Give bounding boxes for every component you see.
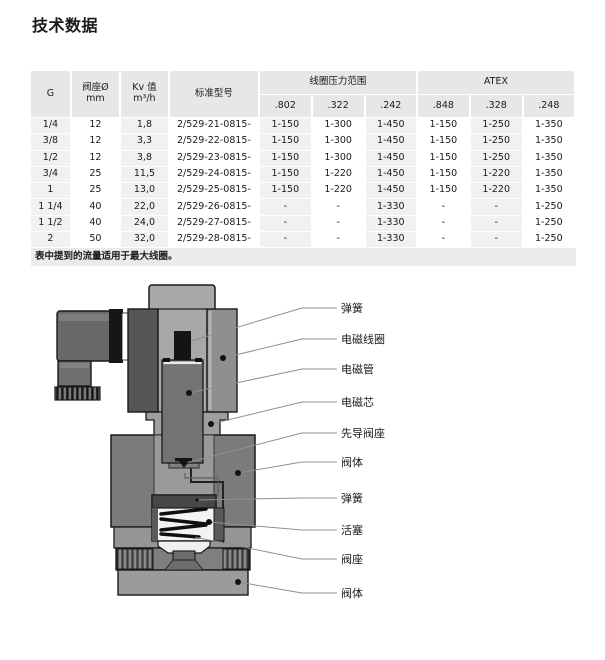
valve-cross-section-figure: 弹簧 电磁线圈 电磁管 电磁芯 先导阀座 阀体 弹簧 活塞 阀座 阀体 (0, 270, 605, 660)
sub-header: .802 (260, 95, 313, 118)
label-valve-body-bottom: 阀体 (341, 586, 363, 600)
table-cell: - (313, 216, 366, 232)
table-cell: 1-330 (366, 232, 418, 248)
table-cell: 1-450 (366, 134, 418, 150)
table-cell: - (418, 216, 471, 232)
label-solenoid-core: 电磁芯 (341, 395, 374, 409)
sub-header: .322 (313, 95, 366, 118)
table-cell: - (418, 199, 471, 215)
table-footnote: 表中提到的流量适用于最大线圈。 (31, 248, 576, 267)
coil-highlight (209, 311, 212, 410)
table-header-row-groups: G 阀座Ø mm Kv 值 m³/h 标准型号 线圈压力范围 ATEX (31, 71, 576, 95)
table-cell: 40 (72, 216, 121, 232)
table-cell: 2/529-25-0815- (170, 183, 260, 199)
table-cell: 1 1/2 (31, 216, 72, 232)
label-pilot-seat: 先导阀座 (341, 426, 385, 440)
label-valve-seat: 阀座 (341, 552, 363, 566)
table-cell: - (260, 216, 313, 232)
table-cell: 2/529-28-0815- (170, 232, 260, 248)
table-cell: 2/529-24-0815- (170, 167, 260, 183)
table-cell: 2 (31, 232, 72, 248)
table-cell: 1-450 (366, 118, 418, 134)
coil-column-left (128, 309, 158, 412)
table-cell: 1-330 (366, 199, 418, 215)
table-cell: 1-450 (366, 167, 418, 183)
table-cell: 2/529-23-0815- (170, 151, 260, 167)
label-spring-top: 弹簧 (341, 301, 363, 315)
table-cell: - (313, 199, 366, 215)
table-cell: 2/529-27-0815- (170, 216, 260, 232)
table-cell: 11,5 (121, 167, 170, 183)
table-cell: 1-250 (524, 199, 576, 215)
table-cell: 1-150 (418, 183, 471, 199)
label-solenoid-tube: 电磁管 (341, 362, 374, 376)
table-cell: 50 (72, 232, 121, 248)
table-cell: 3,8 (121, 151, 170, 167)
top-spring (174, 331, 191, 360)
table-cell: 1-300 (313, 118, 366, 134)
table-cell: 32,0 (121, 232, 170, 248)
table-cell: 1-150 (418, 151, 471, 167)
table-cell: 1-250 (471, 118, 524, 134)
table-cell: 1-350 (524, 134, 576, 150)
table-cell: 25 (72, 183, 121, 199)
col-header-kv: Kv 值 m³/h (121, 71, 170, 118)
table-cell: 1 1/4 (31, 199, 72, 215)
table-cell: 1-450 (366, 151, 418, 167)
col-header-model: 标准型号 (170, 71, 260, 118)
table-cell: 1-250 (524, 232, 576, 248)
thread-right (223, 549, 249, 569)
table-cell: 1-250 (471, 151, 524, 167)
table-cell: - (418, 232, 471, 248)
table-cell: 13,0 (121, 183, 170, 199)
col-header-seat: 阀座Ø mm (72, 71, 121, 118)
solenoid-armature (162, 358, 203, 463)
thread-left (117, 549, 153, 569)
table-cell: 1-250 (471, 134, 524, 150)
sub-header: .328 (471, 95, 524, 118)
table-cell: 2/529-21-0815- (170, 118, 260, 134)
cable-connector (55, 309, 128, 400)
table-row: 1/2123,82/529-23-0815-1-1501-3001-4501-1… (31, 151, 576, 167)
table-cell: - (471, 199, 524, 215)
table-cell: 1-350 (524, 151, 576, 167)
label-spring-bottom: 弹簧 (341, 491, 363, 505)
table-cell: 1-150 (418, 167, 471, 183)
technical-data-table: G 阀座Ø mm Kv 值 m³/h 标准型号 线圈压力范围 ATEX .802… (31, 71, 576, 267)
table-cell: 22,0 (121, 199, 170, 215)
table-cell: - (471, 216, 524, 232)
table-cell: 1-250 (524, 216, 576, 232)
group-header-coil-pressure: 线圈压力范围 (260, 71, 418, 95)
table-cell: 1-350 (524, 118, 576, 134)
valve-body-bottom (118, 570, 248, 595)
valve-diagram: 弹簧 电磁线圈 电磁管 电磁芯 先导阀座 阀体 弹簧 活塞 阀座 阀体 (0, 270, 605, 656)
table-cell: 1-220 (471, 167, 524, 183)
table-cell: 2/529-26-0815- (170, 199, 260, 215)
table-cell: 1-220 (313, 183, 366, 199)
table-row: 25032,02/529-28-0815---1-330--1-250 (31, 232, 576, 248)
table-cell: 1-150 (260, 134, 313, 150)
table-cell: - (471, 232, 524, 248)
table-cell: 40 (72, 199, 121, 215)
table-cell: 1/4 (31, 118, 72, 134)
label-valve-body-upper: 阀体 (341, 455, 363, 469)
sub-header: .242 (366, 95, 418, 118)
table-cell: 25 (72, 167, 121, 183)
table-row: 3/8123,32/529-22-0815-1-1501-3001-4501-1… (31, 134, 576, 150)
table-cell: 1/2 (31, 151, 72, 167)
table-cell: 1-300 (313, 151, 366, 167)
table-cell: 12 (72, 134, 121, 150)
table-row: 1 1/44022,02/529-26-0815---1-330--1-250 (31, 199, 576, 215)
sub-header: .848 (418, 95, 471, 118)
part-labels: 弹簧 电磁线圈 电磁管 电磁芯 先导阀座 阀体 弹簧 活塞 阀座 阀体 (341, 301, 385, 600)
table-cell: 1-300 (313, 134, 366, 150)
table-cell: - (260, 199, 313, 215)
table-cell: - (260, 232, 313, 248)
table-cell: 1-150 (418, 134, 471, 150)
col-header-g: G (31, 71, 72, 118)
table-cell: 1-350 (524, 167, 576, 183)
group-header-atex: ATEX (418, 71, 576, 95)
sub-header: .248 (524, 95, 576, 118)
table-cell: 12 (72, 151, 121, 167)
label-solenoid-coil: 电磁线圈 (341, 332, 385, 346)
table-cell: 1 (31, 183, 72, 199)
table-cell: 1-150 (260, 151, 313, 167)
table-cell: 1,8 (121, 118, 170, 134)
table-cell: 1-450 (366, 183, 418, 199)
table-row: 12513,02/529-25-0815-1-1501-2201-4501-15… (31, 183, 576, 199)
table-cell: 1-150 (260, 183, 313, 199)
label-piston: 活塞 (341, 523, 363, 537)
table-cell: 3/8 (31, 134, 72, 150)
table-body: 1/4121,82/529-21-0815-1-1501-3001-4501-1… (31, 118, 576, 248)
table-cell: 1-220 (313, 167, 366, 183)
table-cell: 12 (72, 118, 121, 134)
table-cell: - (313, 232, 366, 248)
table-cell: 1-220 (471, 183, 524, 199)
table-cell: 2/529-22-0815- (170, 134, 260, 150)
table-row: 1/4121,82/529-21-0815-1-1501-3001-4501-1… (31, 118, 576, 134)
table-cell: 1-150 (260, 167, 313, 183)
table-cell: 1-150 (418, 118, 471, 134)
table-cell: 3,3 (121, 134, 170, 150)
table-cell: 1-350 (524, 183, 576, 199)
table-row: 1 1/24024,02/529-27-0815---1-330--1-250 (31, 216, 576, 232)
table-footnote-row: 表中提到的流量适用于最大线圈。 (31, 248, 576, 267)
page-title: 技术数据 (32, 12, 98, 36)
table-cell: 1-330 (366, 216, 418, 232)
technical-data-table-wrap: G 阀座Ø mm Kv 值 m³/h 标准型号 线圈压力范围 ATEX .802… (31, 71, 576, 267)
table-row: 3/42511,52/529-24-0815-1-1501-2201-4501-… (31, 167, 576, 183)
table-cell: 1-150 (260, 118, 313, 134)
table-cell: 3/4 (31, 167, 72, 183)
table-cell: 24,0 (121, 216, 170, 232)
